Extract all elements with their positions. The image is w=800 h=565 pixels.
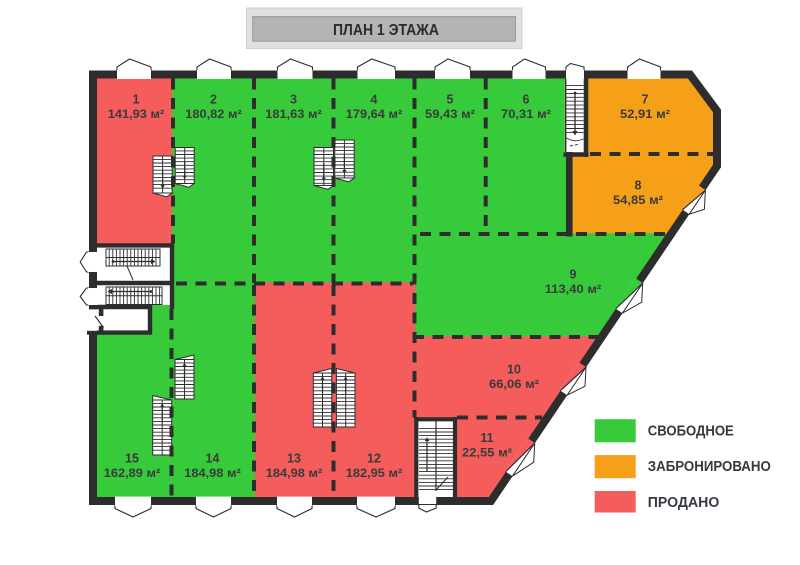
svg-text:6: 6 (523, 93, 530, 107)
svg-text:11: 11 (480, 431, 493, 445)
svg-text:8: 8 (635, 179, 642, 193)
svg-text:ПЛАН 1 ЭТАЖА: ПЛАН 1 ЭТАЖА (333, 22, 439, 39)
svg-text:СВОБОДНОЕ: СВОБОДНОЕ (648, 423, 734, 439)
svg-text:54,85 м²: 54,85 м² (613, 193, 663, 207)
svg-text:15: 15 (125, 452, 139, 466)
svg-text:59,43 м²: 59,43 м² (425, 107, 475, 121)
svg-text:14: 14 (206, 452, 220, 466)
svg-text:184,98 м²: 184,98 м² (266, 466, 323, 480)
svg-text:70,31 м²: 70,31 м² (501, 107, 551, 121)
svg-text:181,63 м²: 181,63 м² (265, 107, 322, 121)
svg-text:10: 10 (507, 363, 521, 377)
svg-text:162,89 м²: 162,89 м² (104, 466, 161, 480)
svg-text:52,91 м²: 52,91 м² (620, 107, 670, 121)
svg-text:4: 4 (371, 93, 378, 107)
svg-text:113,40 м²: 113,40 м² (545, 282, 602, 296)
svg-text:13: 13 (287, 452, 301, 466)
svg-text:184,98 м²: 184,98 м² (184, 466, 241, 480)
svg-text:ПРОДАНО: ПРОДАНО (648, 495, 720, 511)
svg-text:ЗАБРОНИРОВАНО: ЗАБРОНИРОВАНО (648, 459, 771, 475)
svg-text:2: 2 (210, 93, 217, 107)
svg-text:7: 7 (642, 93, 649, 107)
svg-text:5: 5 (447, 93, 454, 107)
svg-text:66,06 м²: 66,06 м² (489, 377, 539, 391)
svg-text:9: 9 (570, 268, 577, 282)
svg-text:180,82 м²: 180,82 м² (185, 107, 242, 121)
svg-text:141,93 м²: 141,93 м² (108, 107, 165, 121)
svg-text:1: 1 (133, 93, 140, 107)
svg-text:182,95 м²: 182,95 м² (346, 466, 403, 480)
svg-text:3: 3 (290, 93, 297, 107)
svg-text:179,64 м²: 179,64 м² (346, 107, 403, 121)
svg-text:22,55 м²: 22,55 м² (462, 446, 512, 460)
svg-text:12: 12 (367, 452, 381, 466)
